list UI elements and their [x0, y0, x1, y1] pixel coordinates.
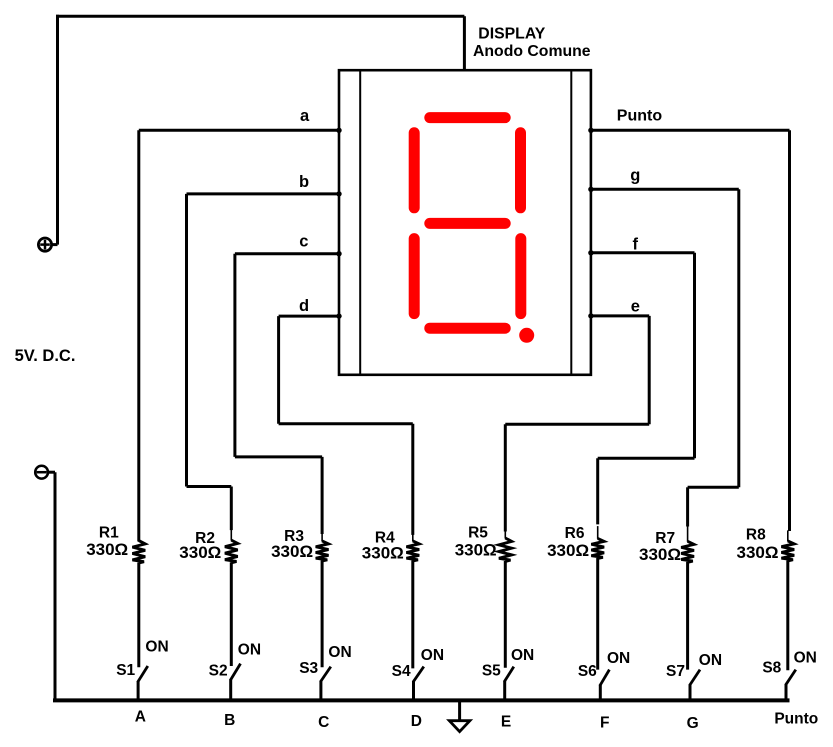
svg-text:ON: ON	[328, 644, 351, 661]
svg-text:Anodo Comune: Anodo Comune	[473, 43, 591, 60]
svg-text:Punto: Punto	[774, 711, 818, 728]
svg-text:330Ω: 330Ω	[737, 543, 779, 562]
svg-text:B: B	[224, 712, 235, 729]
svg-text:F: F	[600, 715, 609, 732]
svg-text:ON: ON	[699, 652, 722, 669]
svg-text:R1: R1	[99, 524, 119, 541]
svg-text:R5: R5	[468, 525, 488, 542]
svg-text:S1: S1	[116, 662, 135, 679]
svg-text:S5: S5	[482, 662, 501, 679]
svg-text:ON: ON	[607, 650, 630, 667]
svg-text:S4: S4	[392, 663, 411, 680]
svg-text:f: f	[633, 235, 639, 253]
svg-text:S7: S7	[666, 663, 685, 680]
svg-text:330Ω: 330Ω	[179, 543, 221, 562]
svg-text:Punto: Punto	[617, 107, 663, 124]
svg-text:e: e	[631, 297, 640, 315]
svg-text:g: g	[630, 167, 640, 185]
svg-text:C: C	[318, 714, 329, 731]
svg-text:G: G	[687, 715, 699, 732]
svg-text:R8: R8	[746, 527, 766, 544]
svg-text:ON: ON	[421, 647, 444, 664]
svg-text:ON: ON	[238, 642, 261, 659]
svg-text:b: b	[299, 173, 309, 191]
svg-text:ON: ON	[511, 647, 534, 664]
svg-text:S8: S8	[762, 659, 781, 676]
svg-text:DISPLAY: DISPLAY	[478, 26, 545, 43]
svg-text:5V. D.C.: 5V. D.C.	[15, 347, 76, 365]
svg-text:ON: ON	[794, 649, 817, 666]
svg-text:D: D	[411, 713, 422, 730]
svg-text:c: c	[299, 233, 308, 251]
svg-text:330Ω: 330Ω	[547, 541, 589, 560]
svg-text:d: d	[299, 297, 309, 315]
svg-text:330Ω: 330Ω	[271, 542, 313, 561]
svg-text:S3: S3	[299, 660, 318, 677]
svg-text:A: A	[135, 709, 146, 726]
svg-text:ON: ON	[145, 639, 168, 656]
svg-text:R6: R6	[565, 525, 585, 542]
svg-text:a: a	[300, 107, 310, 125]
svg-text:330Ω: 330Ω	[86, 540, 128, 559]
svg-text:330Ω: 330Ω	[362, 543, 404, 562]
svg-text:S2: S2	[209, 662, 228, 679]
svg-text:330Ω: 330Ω	[455, 541, 497, 560]
svg-text:E: E	[501, 714, 511, 731]
svg-text:330Ω: 330Ω	[639, 545, 681, 564]
svg-text:S6: S6	[578, 663, 597, 680]
